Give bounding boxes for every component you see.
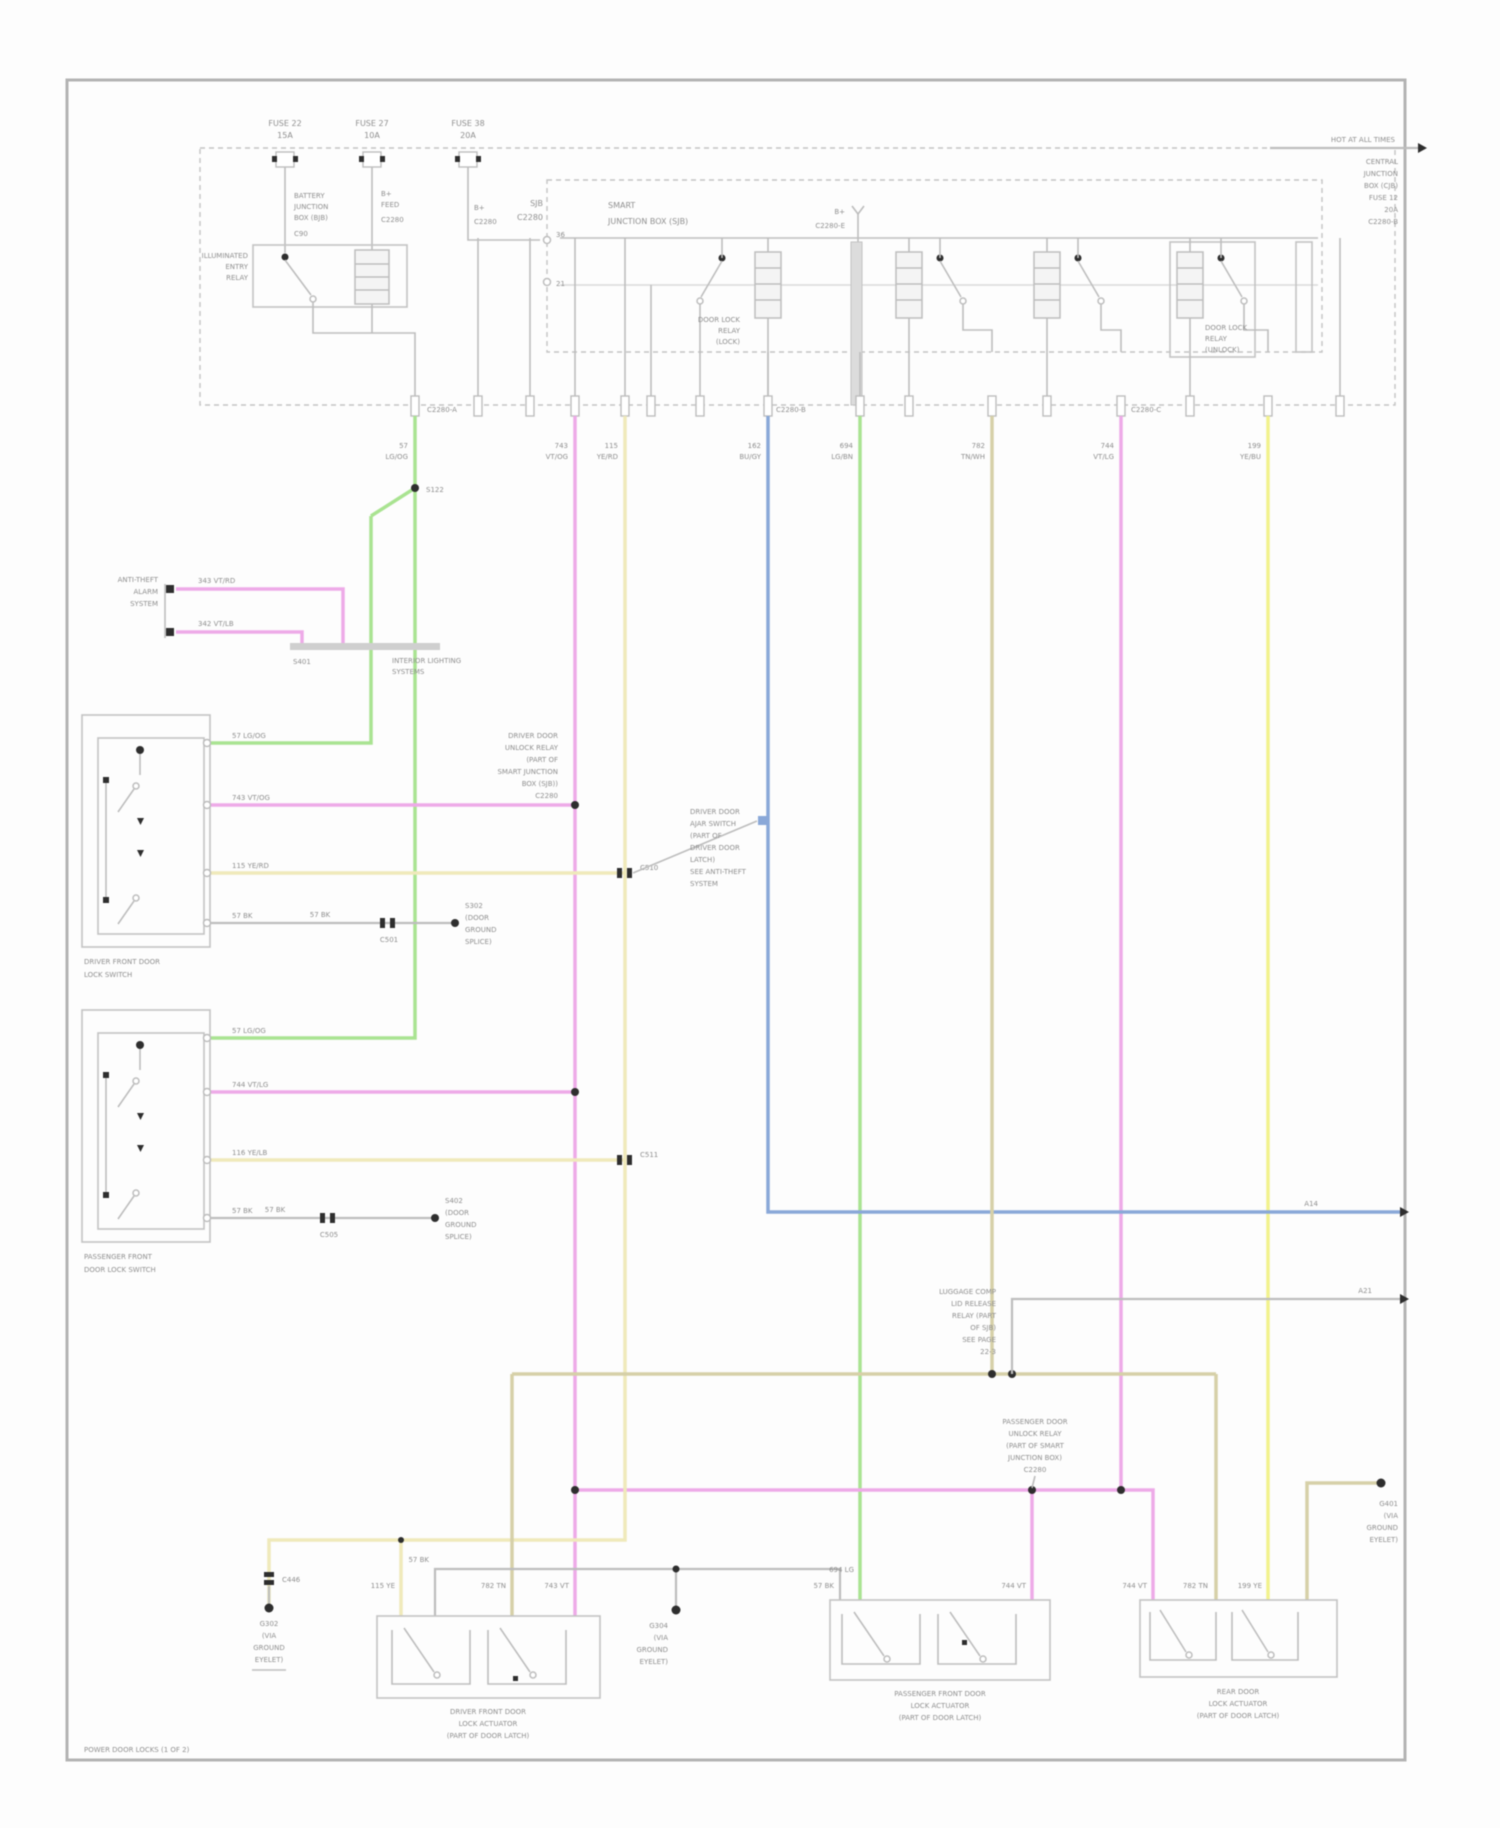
svg-text:SPLICE): SPLICE) — [445, 1233, 472, 1241]
splice-bar — [290, 643, 440, 650]
mid-label-blocks: DRIVER DOOR UNLOCK RELAY (PART OF SMART … — [497, 732, 757, 888]
svg-text:JUNCTION BOX): JUNCTION BOX) — [1007, 1454, 1062, 1462]
svg-text:SYSTEM: SYSTEM — [130, 600, 158, 608]
svg-text:115 YE/RD: 115 YE/RD — [232, 862, 269, 870]
svg-text:782 TN: 782 TN — [1183, 1582, 1208, 1590]
right-arrow-icon — [1418, 143, 1427, 153]
svg-text:LOCK ACTUATOR: LOCK ACTUATOR — [911, 1702, 970, 1710]
svg-text:PASSENGER FRONT DOOR: PASSENGER FRONT DOOR — [894, 1690, 986, 1698]
svg-text:S122: S122 — [426, 486, 444, 494]
ground-point — [672, 1606, 681, 1615]
svg-text:CENTRAL: CENTRAL — [1366, 158, 1398, 166]
svg-text:694: 694 — [840, 442, 854, 450]
svg-text:BU/GY: BU/GY — [739, 453, 761, 461]
svg-text:57 BK: 57 BK — [265, 1206, 286, 1214]
svg-text:C2280-B: C2280-B — [776, 406, 806, 414]
svg-text:57 BK: 57 BK — [232, 912, 253, 920]
svg-text:(VIA: (VIA — [654, 1634, 669, 1642]
svg-text:(DOOR: (DOOR — [445, 1209, 469, 1217]
splice-dot — [411, 484, 419, 492]
svg-text:EYELET): EYELET) — [640, 1658, 669, 1666]
svg-text:343 VT/RD: 343 VT/RD — [198, 577, 235, 585]
svg-text:TN/WH: TN/WH — [960, 453, 985, 461]
svg-text:B+: B+ — [474, 204, 485, 212]
svg-text:ANTI-THEFT: ANTI-THEFT — [118, 576, 159, 584]
fuse-icon — [363, 152, 381, 167]
svg-text:C511: C511 — [640, 1151, 658, 1159]
svg-text:20A: 20A — [460, 131, 476, 140]
svg-text:C2280: C2280 — [1024, 1466, 1047, 1474]
svg-text:694 LG: 694 LG — [829, 1566, 854, 1574]
svg-text:743 VT/OG: 743 VT/OG — [232, 794, 270, 802]
rear-lock-actuator: REAR DOOR LOCK ACTUATOR (PART OF DOOR LA… — [1140, 1600, 1337, 1720]
svg-text:RELAY: RELAY — [226, 274, 249, 282]
svg-text:B+: B+ — [834, 208, 845, 216]
fuse-3: FUSE 38 20A B+ C2280 36 — [451, 119, 565, 244]
svg-text:RELAY: RELAY — [1205, 335, 1228, 343]
svg-text:INTERIOR LIGHTING: INTERIOR LIGHTING — [392, 657, 461, 665]
svg-text:C2280: C2280 — [517, 213, 543, 222]
svg-text:C2280-A: C2280-A — [427, 406, 457, 414]
green-wire: S122 — [211, 416, 860, 1600]
svg-text:743 VT: 743 VT — [544, 1582, 569, 1590]
svg-text:EYELET): EYELET) — [1370, 1536, 1399, 1544]
svg-text:57 BK: 57 BK — [310, 911, 331, 919]
svg-text:GROUND: GROUND — [445, 1221, 477, 1229]
svg-text:SPLICE): SPLICE) — [465, 938, 492, 946]
blue-wire: A14 — [758, 416, 1409, 1217]
entry-relay: ILLUMINATED ENTRY RELAY — [202, 245, 415, 396]
svg-text:ALARM: ALARM — [133, 588, 158, 596]
anti-theft-feed: ANTI-THEFT ALARM SYSTEM 343 VT/RD 342 VT… — [118, 576, 462, 676]
svg-text:SYSTEM: SYSTEM — [690, 880, 718, 888]
svg-text:21: 21 — [556, 280, 565, 288]
relay-pivot — [282, 254, 289, 261]
svg-text:DRIVER DOOR: DRIVER DOOR — [690, 844, 740, 852]
svg-text:BOX (SJB)): BOX (SJB)) — [522, 780, 559, 788]
svg-text:JUNCTION: JUNCTION — [293, 203, 328, 211]
fuse-1: FUSE 22 15A BATTERY JUNCTION BOX (BJB) C… — [268, 119, 328, 253]
svg-text:(PART OF: (PART OF — [526, 756, 558, 764]
fuse-icon — [276, 152, 294, 167]
svg-text:GROUND: GROUND — [1366, 1524, 1398, 1532]
svg-text:AJAR SWITCH: AJAR SWITCH — [690, 820, 736, 828]
ground-point — [265, 1604, 274, 1613]
page-caption: POWER DOOR LOCKS (1 OF 2) — [84, 1746, 190, 1754]
svg-text:B+: B+ — [381, 190, 392, 198]
svg-text:115: 115 — [605, 442, 618, 450]
passenger-lock-actuator: PASSENGER FRONT DOOR LOCK ACTUATOR (PART… — [830, 1600, 1050, 1722]
svg-text:SEE ANTI-THEFT: SEE ANTI-THEFT — [690, 868, 747, 876]
fuse-icon — [459, 152, 477, 167]
svg-text:(VIA: (VIA — [262, 1632, 277, 1640]
svg-text:57 LG/OG: 57 LG/OG — [232, 732, 266, 740]
svg-text:22-3: 22-3 — [980, 1348, 996, 1356]
svg-text:YE/BU: YE/BU — [1239, 453, 1261, 461]
svg-text:(PART OF: (PART OF — [690, 832, 722, 840]
svg-text:VT/OG: VT/OG — [546, 453, 568, 461]
svg-text:PASSENGER DOOR: PASSENGER DOOR — [1002, 1418, 1067, 1426]
svg-text:C505: C505 — [320, 1231, 338, 1239]
driver-door-lock-switch: 57 LG/OG 743 VT/OG 115 YE/RD 57 BK DRIVE… — [82, 715, 497, 979]
ground-point — [1377, 1479, 1386, 1488]
svg-text:BOX (CJB): BOX (CJB) — [1364, 182, 1398, 190]
svg-text:UNLOCK RELAY: UNLOCK RELAY — [1008, 1430, 1062, 1438]
svg-text:S402: S402 — [445, 1197, 463, 1205]
svg-text:SYSTEMS: SYSTEMS — [392, 668, 425, 676]
svg-text:DOOR LOCK SWITCH: DOOR LOCK SWITCH — [84, 1266, 156, 1274]
svg-text:C2280: C2280 — [381, 216, 404, 224]
connector-bar — [1296, 242, 1312, 352]
blue-connector-square — [758, 816, 767, 825]
svg-text:VT/LG: VT/LG — [1093, 453, 1114, 461]
svg-text:SEE PAGE: SEE PAGE — [962, 1336, 996, 1344]
sjb-relay-2 — [896, 238, 992, 396]
svg-text:SJB: SJB — [530, 199, 543, 208]
svg-text:C2280-B: C2280-B — [1368, 218, 1398, 226]
svg-text:FUSE 27: FUSE 27 — [355, 119, 388, 128]
connector-row: C2280-A C2280-B C2280-C — [411, 396, 1344, 416]
svg-text:LUGGAGE COMP: LUGGAGE COMP — [939, 1288, 996, 1296]
svg-text:C2280-E: C2280-E — [815, 222, 845, 230]
svg-text:FUSE 12: FUSE 12 — [1369, 194, 1398, 202]
svg-text:782 TN: 782 TN — [481, 1582, 506, 1590]
top-right-exit-wire: HOT AT ALL TIMES CENTRAL JUNCTION BOX (C… — [1270, 136, 1427, 226]
svg-text:EYELET): EYELET) — [255, 1656, 284, 1664]
svg-text:DRIVER DOOR: DRIVER DOOR — [508, 732, 558, 740]
svg-text:G304: G304 — [649, 1622, 668, 1630]
svg-text:GROUND: GROUND — [253, 1644, 285, 1652]
svg-text:C2280: C2280 — [474, 218, 497, 226]
svg-text:UNLOCK RELAY: UNLOCK RELAY — [505, 744, 559, 752]
svg-text:162: 162 — [748, 442, 761, 450]
svg-text:15A: 15A — [277, 131, 293, 140]
svg-text:FUSE 38: FUSE 38 — [451, 119, 484, 128]
svg-text:C2280-C: C2280-C — [1131, 406, 1161, 414]
fuse-2: FUSE 27 10A B+ FEED C2280 — [355, 119, 403, 250]
ground-right: G401 (VIA GROUND EYELET) — [1307, 1479, 1398, 1601]
svg-text:57 LG/OG: 57 LG/OG — [232, 1027, 266, 1035]
svg-text:199 YE: 199 YE — [1238, 1582, 1262, 1590]
passenger-door-lock-switch: 57 LG/OG 744 VT/LG 116 YE/LB 57 BK PASSE… — [82, 1010, 477, 1274]
svg-text:GROUND: GROUND — [465, 926, 497, 934]
svg-text:(UNLOCK): (UNLOCK) — [1205, 346, 1240, 354]
svg-text:LOCK ACTUATOR: LOCK ACTUATOR — [459, 1720, 518, 1728]
svg-text:FEED: FEED — [381, 201, 399, 209]
svg-text:YE/RD: YE/RD — [596, 453, 618, 461]
svg-text:OF SJB): OF SJB) — [970, 1324, 996, 1332]
svg-text:342 VT/LB: 342 VT/LB — [198, 620, 234, 628]
svg-text:G401: G401 — [1379, 1500, 1398, 1508]
svg-text:C501: C501 — [380, 936, 398, 944]
svg-text:ILLUMINATED: ILLUMINATED — [202, 252, 248, 260]
svg-text:(VIA: (VIA — [1384, 1512, 1399, 1520]
svg-text:(PART OF DOOR LATCH): (PART OF DOOR LATCH) — [1197, 1712, 1280, 1720]
svg-text:C510: C510 — [640, 864, 658, 872]
svg-text:G302: G302 — [260, 1620, 279, 1628]
svg-text:LG/OG: LG/OG — [385, 453, 408, 461]
svg-text:BOX (BJB): BOX (BJB) — [294, 214, 328, 222]
power-distribution-box: SJB C2280 SMART JUNCTION BOX (SJB) HOT A… — [200, 119, 1427, 416]
svg-text:C446: C446 — [282, 1576, 301, 1584]
svg-text:DOOR LOCK: DOOR LOCK — [1205, 324, 1248, 332]
svg-text:743: 743 — [555, 442, 568, 450]
svg-text:(PART OF SMART: (PART OF SMART — [1006, 1442, 1065, 1450]
svg-text:LG/BN: LG/BN — [831, 453, 853, 461]
svg-text:(PART OF DOOR LATCH): (PART OF DOOR LATCH) — [899, 1714, 982, 1722]
svg-text:115 YE: 115 YE — [371, 1582, 395, 1590]
svg-text:57 BK: 57 BK — [813, 1582, 834, 1590]
lock-arrow-icon — [137, 818, 144, 825]
sjb-relay-3 — [1034, 238, 1121, 396]
svg-text:57 BK: 57 BK — [408, 1556, 429, 1564]
svg-text:20A: 20A — [1384, 206, 1398, 214]
svg-text:(PART OF DOOR LATCH): (PART OF DOOR LATCH) — [447, 1732, 530, 1740]
svg-text:199: 199 — [1248, 442, 1261, 450]
svg-text:C2280: C2280 — [535, 792, 558, 800]
svg-text:57 BK: 57 BK — [232, 1207, 253, 1215]
svg-text:S302: S302 — [465, 902, 483, 910]
svg-text:SMART JUNCTION: SMART JUNCTION — [497, 768, 558, 776]
svg-text:PASSENGER FRONT: PASSENGER FRONT — [84, 1253, 153, 1261]
svg-text:744 VT/LG: 744 VT/LG — [232, 1081, 268, 1089]
inline-connector-icon — [617, 868, 622, 878]
svg-text:744: 744 — [1101, 442, 1115, 450]
sjb-internals: 21 B+ C2280-E DOOR LOCK RELAY — [478, 206, 1340, 405]
svg-text:S401: S401 — [293, 658, 311, 666]
svg-text:LOCK SWITCH: LOCK SWITCH — [84, 971, 132, 979]
svg-text:JUNCTION: JUNCTION — [1363, 170, 1398, 178]
svg-text:744 VT: 744 VT — [1001, 1582, 1026, 1590]
svg-text:10A: 10A — [364, 131, 380, 140]
svg-text:RELAY: RELAY — [718, 327, 741, 335]
svg-text:HOT AT ALL TIMES: HOT AT ALL TIMES — [1331, 136, 1396, 144]
svg-text:BATTERY: BATTERY — [294, 192, 325, 200]
pale-yellow-wire: C510 C511 — [211, 416, 658, 1616]
svg-text:ENTRY: ENTRY — [225, 263, 248, 271]
wiring-diagram-page: POWER DOOR LOCKS (1 OF 2) SJB C2280 SMAR… — [0, 0, 1500, 1828]
svg-text:DOOR LOCK: DOOR LOCK — [698, 316, 741, 324]
svg-text:A21: A21 — [1358, 1287, 1372, 1295]
unlock-arrow-icon — [137, 850, 144, 857]
bottom-section: A21 LUGGAGE COMP LID RELEASE RELAY (PART… — [252, 1287, 1409, 1740]
svg-text:FUSE 22: FUSE 22 — [268, 119, 301, 128]
svg-text:744 VT: 744 VT — [1122, 1582, 1147, 1590]
svg-text:DRIVER FRONT DOOR: DRIVER FRONT DOOR — [84, 958, 160, 966]
svg-text:(DOOR: (DOOR — [465, 914, 489, 922]
ground-left: C446 G302 (VIA GROUND EYELET) — [252, 1572, 301, 1670]
wiring-diagram-canvas: POWER DOOR LOCKS (1 OF 2) SJB C2280 SMAR… — [0, 0, 1500, 1828]
tan-wire — [512, 416, 1216, 1616]
svg-text:(LOCK): (LOCK) — [716, 338, 740, 346]
svg-text:JUNCTION BOX (SJB): JUNCTION BOX (SJB) — [607, 217, 688, 226]
svg-text:A14: A14 — [1304, 1200, 1318, 1208]
svg-text:DRIVER DOOR: DRIVER DOOR — [690, 808, 740, 816]
driver-lock-actuator: DRIVER FRONT DOOR LOCK ACTUATOR (PART OF… — [377, 1616, 600, 1740]
svg-text:57: 57 — [399, 442, 408, 450]
svg-text:RELAY (PART: RELAY (PART — [952, 1312, 997, 1320]
svg-text:116 YE/LB: 116 YE/LB — [232, 1149, 268, 1157]
harness-wires: 57 LG/OG 743 VT/OG 115 YE/RD 162 BU/GY 6… — [211, 416, 1409, 1616]
svg-text:REAR DOOR: REAR DOOR — [1217, 1688, 1260, 1696]
svg-text:GROUND: GROUND — [636, 1646, 668, 1654]
sjb-title: SMART — [608, 201, 635, 210]
svg-text:DRIVER FRONT DOOR: DRIVER FRONT DOOR — [450, 1708, 526, 1716]
svg-text:LATCH): LATCH) — [690, 856, 715, 864]
svg-text:C90: C90 — [294, 230, 308, 238]
svg-text:LOCK ACTUATOR: LOCK ACTUATOR — [1209, 1700, 1268, 1708]
svg-text:782: 782 — [972, 442, 985, 450]
svg-text:LID RELEASE: LID RELEASE — [951, 1300, 996, 1308]
connector-terminal — [166, 585, 174, 593]
sjb-relay-unlock: DOOR LOCK RELAY (UNLOCK) — [1170, 238, 1268, 396]
